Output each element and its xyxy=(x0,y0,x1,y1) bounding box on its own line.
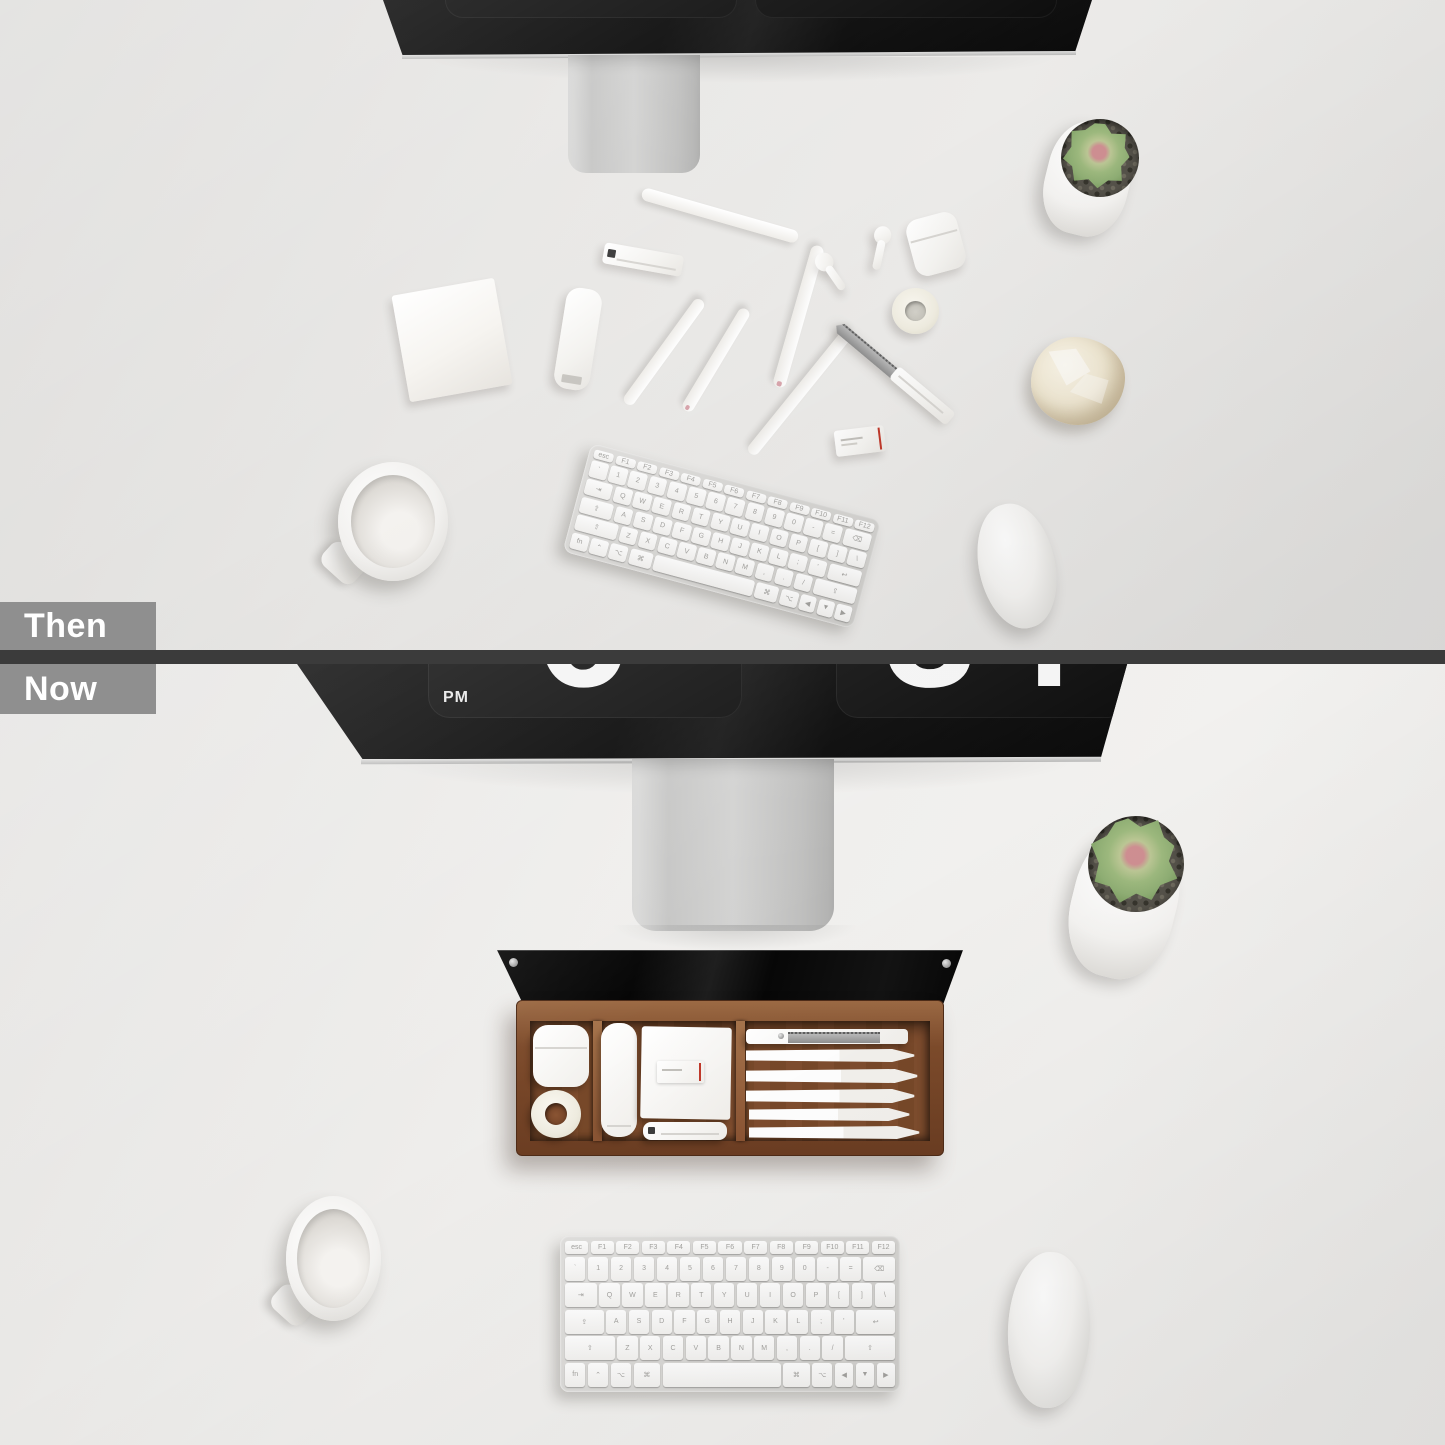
keyboard-key: F5 xyxy=(693,1241,716,1254)
keyboard-row: `1234567890-=⌫ xyxy=(565,1257,895,1281)
keyboard-key: 9 xyxy=(764,507,785,527)
keyboard-key: ▶ xyxy=(833,603,853,623)
keyboard-key: [ xyxy=(829,1283,849,1307)
keyboard-key: Y xyxy=(714,1283,734,1307)
magic-mouse xyxy=(1005,1251,1092,1410)
keyboard-key: L xyxy=(768,547,789,567)
keyboard-row: fn⌃⌥⌘⌘⌥◀▼▶ xyxy=(565,1363,895,1387)
keyboard-key: ⌫ xyxy=(863,1257,895,1281)
pen-tip xyxy=(776,381,782,387)
keyboard-key: D xyxy=(652,516,673,536)
keyboard-key: ⌘ xyxy=(627,548,653,570)
airpods-case xyxy=(533,1025,589,1087)
monitor-shadow xyxy=(420,57,1060,83)
keyboard-key: W xyxy=(632,491,653,511)
pen-tube xyxy=(552,286,604,392)
keyboard-key: F9 xyxy=(795,1241,818,1254)
keyboard-key: 6 xyxy=(703,1257,723,1281)
keyboard-key: ◀ xyxy=(835,1363,853,1387)
white-pen xyxy=(749,1126,921,1139)
keyboard-key: ; xyxy=(811,1310,831,1334)
keyboard-key: 5 xyxy=(680,1257,700,1281)
case-lid-seam xyxy=(535,1047,587,1049)
keyboard-key: ⌘ xyxy=(754,582,780,604)
keyboard-key: H xyxy=(720,1310,740,1334)
white-pen xyxy=(640,187,799,244)
keyboard-key: C xyxy=(663,1336,683,1360)
keyboard-key: Q xyxy=(599,1283,619,1307)
keyboard-key: 1 xyxy=(608,465,629,485)
white-pen xyxy=(746,1049,916,1062)
pen-tip xyxy=(684,404,691,411)
eraser-red-stripe xyxy=(878,428,883,450)
keyboard-key: ] xyxy=(827,543,848,563)
magic-keyboard: escF1F2F3F4F5F6F7F8F9F10F11F12`123456789… xyxy=(563,443,882,629)
keyboard-key: \ xyxy=(846,549,867,569)
keyboard-key: 2 xyxy=(627,471,648,491)
succulent-plant xyxy=(1040,108,1144,242)
keyboard-key: K xyxy=(749,542,770,562)
eraser-red-stripe xyxy=(699,1063,701,1081)
monitor-screen: 6 PM 34 xyxy=(295,663,1128,760)
keyboard-key: ` xyxy=(565,1257,585,1281)
keyboard-key: [ xyxy=(807,538,828,558)
keyboard-key: 1 xyxy=(588,1257,608,1281)
keyboard-key: F7 xyxy=(744,1241,767,1254)
keyboard-key: G xyxy=(691,526,712,546)
now-label-text: Now xyxy=(24,670,97,709)
monitor-screen xyxy=(383,0,1092,58)
keyboard-key: U xyxy=(737,1283,757,1307)
handle-seam xyxy=(898,375,943,413)
keyboard-key: R xyxy=(671,502,692,522)
keyboard-key: 3 xyxy=(647,476,668,496)
keyboard-key: J xyxy=(743,1310,763,1334)
walnut-organizer-tray xyxy=(516,1000,944,1156)
keyboard-key: ⌃ xyxy=(588,1363,608,1387)
pen-tube xyxy=(601,1023,637,1137)
tape-hole xyxy=(545,1103,567,1125)
stapler-seam xyxy=(661,1133,719,1135)
keyboard-key: ⇥ xyxy=(565,1283,597,1307)
keyboard-key: L xyxy=(788,1310,808,1334)
eraser-text xyxy=(841,437,863,442)
keyboard-key: . xyxy=(800,1336,820,1360)
keyboard-key: M xyxy=(754,1336,774,1360)
keyboard-key: ⌘ xyxy=(634,1363,660,1387)
white-pen xyxy=(746,1069,919,1083)
lid-screw xyxy=(509,958,518,967)
clock-hour-digit: 6 xyxy=(429,663,741,712)
clock-minute-digits: 34 xyxy=(837,663,1129,712)
keyboard-key: F12 xyxy=(872,1241,895,1254)
keyboard-key: - xyxy=(803,518,824,538)
airpods-case xyxy=(903,209,968,278)
keyboard-key: ◀ xyxy=(798,594,818,614)
flip-clock-hour-card: 6 PM xyxy=(428,663,742,718)
keyboard-key: C xyxy=(657,536,678,556)
keyboard-key: - xyxy=(817,1257,837,1281)
keyboard-key: N xyxy=(715,552,736,572)
mug-interior xyxy=(351,475,435,568)
keyboard-key: J xyxy=(729,537,750,557)
tube-label xyxy=(561,374,582,385)
keyboard-key: ; xyxy=(787,552,808,572)
keyboard-key: D xyxy=(652,1310,672,1334)
clock-meridiem: PM xyxy=(443,689,469,707)
stapler-anvil xyxy=(648,1127,655,1134)
white-pen xyxy=(749,1108,911,1121)
keyboard-key: M xyxy=(734,557,755,577)
utility-knife xyxy=(746,1029,908,1044)
keyboard-key: 6 xyxy=(705,492,726,512)
keyboard-key: X xyxy=(637,531,658,551)
keyboard-key: F10 xyxy=(821,1241,844,1254)
keyboard-key: / xyxy=(793,573,814,593)
keyboard-key: W xyxy=(622,1283,642,1307)
keyboard-key: ⇧ xyxy=(565,1336,615,1360)
stapler xyxy=(602,242,684,277)
keyboard-row: escF1F2F3F4F5F6F7F8F9F10F11F12 xyxy=(565,1241,895,1254)
keyboard-key: X xyxy=(640,1336,660,1360)
keyboard-key: R xyxy=(668,1283,688,1307)
keyboard-key: K xyxy=(765,1310,785,1334)
keyboard-key: F2 xyxy=(616,1241,639,1254)
keyboard-key: F3 xyxy=(642,1241,665,1254)
lid-screw xyxy=(942,959,951,968)
now-label: Now xyxy=(0,664,156,714)
keyboard-key: 0 xyxy=(783,512,804,532)
case-lid-seam xyxy=(910,229,957,243)
keyboard-key: \ xyxy=(875,1283,895,1307)
keyboard-key: 8 xyxy=(744,502,765,522)
keyboard-key: ↩ xyxy=(856,1310,895,1334)
keyboard-key: ▶ xyxy=(877,1363,895,1387)
keyboard-key: Q xyxy=(612,486,633,506)
keyboard-key: ▼ xyxy=(816,598,836,618)
keyboard-key: 2 xyxy=(611,1257,631,1281)
flip-clock-card xyxy=(445,0,737,18)
then-scene: escF1F2F3F4F5F6F7F8F9F10F11F12`123456789… xyxy=(0,0,1445,651)
utility-knife xyxy=(832,318,956,425)
knife-blade xyxy=(788,1032,880,1043)
keyboard-key: = xyxy=(840,1257,860,1281)
keyboard-key: E xyxy=(651,496,672,516)
keyboard-key: T xyxy=(691,1283,711,1307)
keyboard-key: ' xyxy=(834,1310,854,1334)
keyboard-key: G xyxy=(697,1310,717,1334)
flip-clock-card xyxy=(755,0,1057,18)
keyboard-key: A xyxy=(606,1310,626,1334)
keyboard-key: ⇪ xyxy=(565,1310,604,1334)
keyboard-key: ⌥ xyxy=(608,543,629,563)
eraser-box xyxy=(834,425,887,457)
divider-bar xyxy=(0,650,1445,664)
knife-handle xyxy=(889,366,956,426)
keyboard-key: F4 xyxy=(667,1241,690,1254)
keyboard-key: ] xyxy=(852,1283,872,1307)
keyboard-key: F11 xyxy=(846,1241,869,1254)
keyboard-key: 0 xyxy=(795,1257,815,1281)
stapler-seam xyxy=(617,258,676,270)
keyboard-key: V xyxy=(686,1336,706,1360)
keyboard-row: ⇧ZXCVBNM,./⇧ xyxy=(565,1336,895,1360)
keyboard-key: 8 xyxy=(749,1257,769,1281)
blade-dot xyxy=(778,1033,784,1039)
eraser-box xyxy=(657,1061,704,1083)
keyboard-key: F6 xyxy=(718,1241,741,1254)
sticky-notes xyxy=(391,278,512,402)
keyboard-row: ⇥QWERTYUIOP[]\ xyxy=(565,1283,895,1307)
keyboard-key: 4 xyxy=(657,1257,677,1281)
keyboard-key: . xyxy=(773,568,794,588)
keyboard-key: ⌘ xyxy=(783,1363,809,1387)
keyboard-key xyxy=(663,1363,781,1387)
keyboard-key: 7 xyxy=(725,497,746,517)
keyboard-key: A xyxy=(613,505,634,525)
keyboard-key: Y xyxy=(710,512,731,532)
keyboard-key: F8 xyxy=(770,1241,793,1254)
eraser-text xyxy=(841,442,857,446)
keyboard-key: I xyxy=(760,1283,780,1307)
keyboard-key: / xyxy=(822,1336,842,1360)
keyboard-key: F xyxy=(674,1310,694,1334)
airpods-earbud xyxy=(863,224,896,276)
coffee-mug xyxy=(338,462,448,581)
keyboard-key: O xyxy=(783,1283,803,1307)
keyboard-key: ⌃ xyxy=(588,537,609,557)
keyboard-key: B xyxy=(708,1336,728,1360)
keyboard-key: fn xyxy=(565,1363,585,1387)
then-label: Then xyxy=(0,602,156,650)
earbud-stem xyxy=(872,239,886,270)
keyboard-key: U xyxy=(729,517,750,537)
succulent-plant xyxy=(1064,811,1194,981)
keyboard-key: 4 xyxy=(666,481,687,501)
keyboard-key: = xyxy=(822,523,843,543)
keyboard-key: esc xyxy=(565,1241,588,1254)
keyboard-key: T xyxy=(690,507,711,527)
keyboard-key: ⌥ xyxy=(778,588,799,608)
keyboard-key: Z xyxy=(617,1336,637,1360)
earbud-stem xyxy=(824,264,847,292)
stapler-anvil xyxy=(607,249,616,258)
keyboard-key: F1 xyxy=(591,1241,614,1254)
stapler xyxy=(643,1122,727,1140)
keyboard-key: 3 xyxy=(634,1257,654,1281)
keyboard-key: F xyxy=(671,521,692,541)
tube-seam xyxy=(607,1125,631,1127)
keyboard-key: ⌥ xyxy=(611,1363,631,1387)
magic-keyboard: escF1F2F3F4F5F6F7F8F9F10F11F12`123456789… xyxy=(560,1236,900,1392)
keyboard-key: ⌥ xyxy=(812,1363,832,1387)
eraser-text xyxy=(662,1069,682,1071)
white-pen xyxy=(746,1089,916,1103)
keyboard-key: , xyxy=(754,562,775,582)
coffee-mug xyxy=(286,1196,381,1321)
magic-mouse xyxy=(967,496,1068,635)
keyboard-key: V xyxy=(676,542,697,562)
keyboard-key: 9 xyxy=(772,1257,792,1281)
keyboard-key: Z xyxy=(618,526,639,546)
monitor-stand xyxy=(568,55,700,173)
then-label-text: Then xyxy=(24,607,107,646)
keyboard-key: , xyxy=(777,1336,797,1360)
washi-tape-roll xyxy=(892,288,939,334)
keyboard-key: H xyxy=(710,531,731,551)
keyboard-key: I xyxy=(749,523,770,543)
keyboard-key: O xyxy=(768,528,789,548)
keyboard-key: ` xyxy=(588,460,609,480)
now-scene: 6 PM 34 xyxy=(0,663,1445,1445)
stand-shadow xyxy=(610,925,860,951)
desk-before-after-photo: escF1F2F3F4F5F6F7F8F9F10F11F12`123456789… xyxy=(0,0,1445,1445)
keyboard-key: E xyxy=(645,1283,665,1307)
monitor-stand xyxy=(632,759,834,931)
keyboard-key: B xyxy=(695,547,716,567)
flip-clock-minute-card: 34 xyxy=(836,663,1130,718)
keyboard-key: fn xyxy=(569,532,590,552)
keyboard-key: P xyxy=(788,533,809,553)
tray-divider xyxy=(736,1021,745,1141)
keyboard-key: ' xyxy=(807,557,828,577)
keyboard-key: S xyxy=(629,1310,649,1334)
knife-blade xyxy=(833,321,900,380)
washi-tape-roll xyxy=(531,1090,581,1138)
keyboard-row: ⇪ASDFGHJKL;'↩ xyxy=(565,1310,895,1334)
keyboard-key: 5 xyxy=(686,486,707,506)
mug-interior xyxy=(297,1209,370,1308)
keyboard-key: N xyxy=(731,1336,751,1360)
keyboard-key: P xyxy=(806,1283,826,1307)
keyboard-key: 7 xyxy=(726,1257,746,1281)
tape-hole xyxy=(905,301,926,321)
keyboard-key: S xyxy=(632,511,653,531)
crumpled-paper xyxy=(1031,337,1125,425)
keyboard-key: ⇧ xyxy=(845,1336,895,1360)
keyboard-key: ▼ xyxy=(856,1363,874,1387)
